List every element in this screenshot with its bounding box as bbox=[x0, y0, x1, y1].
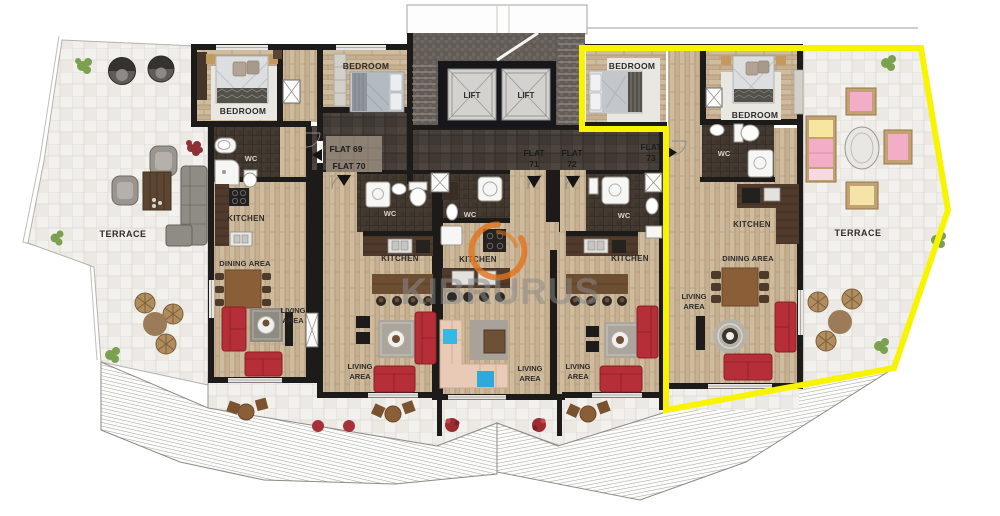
svg-text:KITCHEN: KITCHEN bbox=[733, 220, 771, 229]
svg-text:LIVING: LIVING bbox=[565, 362, 590, 371]
svg-text:73: 73 bbox=[646, 153, 656, 163]
svg-text:KITCHEN: KITCHEN bbox=[227, 214, 265, 223]
svg-text:FLAT 69: FLAT 69 bbox=[330, 144, 363, 154]
svg-text:AREA: AREA bbox=[282, 316, 304, 325]
svg-text:BEDROOM: BEDROOM bbox=[220, 106, 267, 116]
svg-text:BEDROOM: BEDROOM bbox=[732, 110, 779, 120]
svg-text:WC: WC bbox=[618, 211, 631, 220]
svg-text:WC: WC bbox=[245, 154, 258, 163]
svg-text:KITCHEN: KITCHEN bbox=[381, 254, 419, 263]
svg-text:FLAT: FLAT bbox=[640, 142, 662, 152]
svg-text:KIBRURUS: KIBRURUS bbox=[400, 271, 599, 312]
svg-text:LIFT: LIFT bbox=[518, 91, 535, 100]
svg-text:TERRACE: TERRACE bbox=[834, 228, 881, 238]
svg-text:KITCHEN: KITCHEN bbox=[459, 255, 497, 264]
svg-text:AREA: AREA bbox=[349, 372, 371, 381]
svg-text:WC: WC bbox=[718, 149, 731, 158]
svg-text:LIVING: LIVING bbox=[347, 362, 372, 371]
svg-text:LIFT: LIFT bbox=[464, 91, 481, 100]
svg-text:FLAT 70: FLAT 70 bbox=[333, 161, 366, 171]
svg-text:FLAT: FLAT bbox=[523, 148, 545, 158]
svg-text:KITCHEN: KITCHEN bbox=[611, 254, 649, 263]
svg-text:AREA: AREA bbox=[519, 374, 541, 383]
svg-text:71: 71 bbox=[529, 159, 539, 169]
svg-text:LIVING: LIVING bbox=[681, 292, 706, 301]
svg-text:DINING AREA: DINING AREA bbox=[219, 259, 271, 268]
svg-text:FLAT: FLAT bbox=[561, 148, 583, 158]
svg-text:AREA: AREA bbox=[683, 302, 705, 311]
svg-text:LIVING: LIVING bbox=[517, 364, 542, 373]
svg-text:72: 72 bbox=[567, 159, 577, 169]
svg-text:DINING AREA: DINING AREA bbox=[722, 254, 774, 263]
svg-text:BEDROOM: BEDROOM bbox=[609, 61, 656, 71]
svg-text:TERRACE: TERRACE bbox=[99, 229, 146, 239]
svg-text:WC: WC bbox=[384, 209, 397, 218]
svg-text:BEDROOM: BEDROOM bbox=[343, 61, 390, 71]
svg-text:AREA: AREA bbox=[567, 372, 589, 381]
svg-text:WC: WC bbox=[464, 210, 477, 219]
svg-text:LIVING: LIVING bbox=[280, 306, 305, 315]
